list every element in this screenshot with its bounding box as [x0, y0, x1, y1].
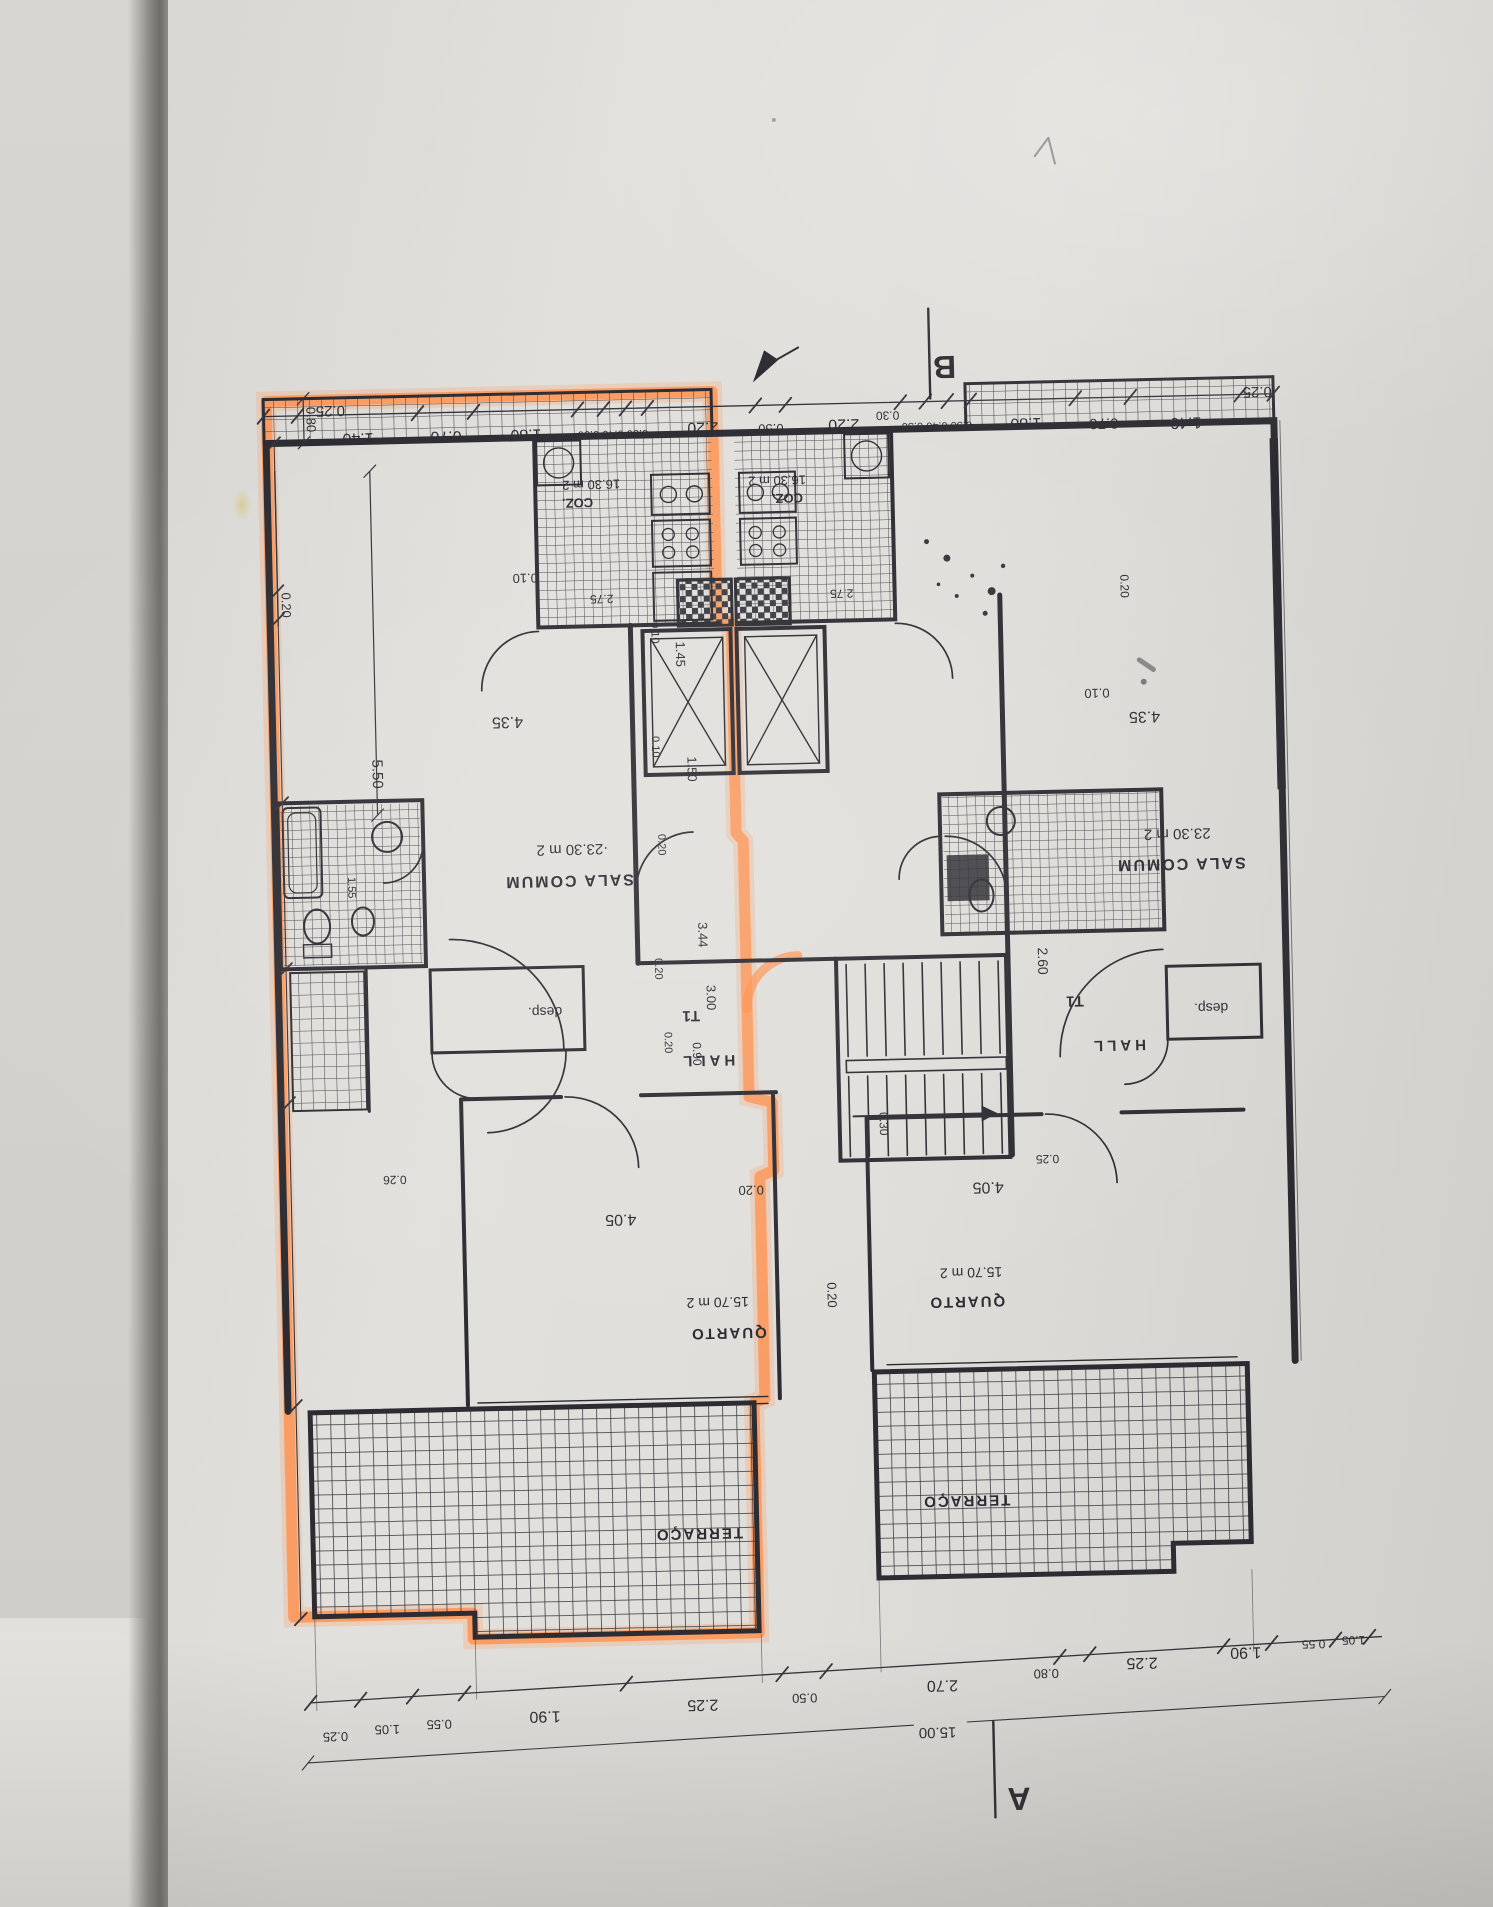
room-desp-right: desp.: [1194, 1000, 1229, 1017]
dim-v-145: 1.45: [673, 641, 689, 667]
label-t1-left: T1: [682, 1007, 700, 1024]
room-sala-area-left: ·23.30 m 2: [536, 840, 608, 859]
dim-v-020-wall-l: 0.20: [278, 592, 294, 618]
dim-bot-225-r: 2.25: [1126, 1654, 1158, 1672]
dim-h-010-r: 0.10: [1084, 685, 1110, 701]
room-quarto-area-left: 15.70 m 2: [686, 1294, 749, 1311]
dim-top-220-r: 2.20: [828, 415, 860, 433]
section-line-a: [993, 1721, 995, 1817]
dim-top-070-r: 0.70: [1089, 414, 1119, 432]
section-marker-b: B: [933, 349, 957, 386]
floor-plan-photo: 0.251.400.701.800.50 0.40 0.502.200.502.…: [0, 0, 1493, 1907]
dim-h-405-r: 4.05: [972, 1178, 1004, 1196]
dim-bot-270: 2.70: [927, 1676, 959, 1694]
dim-bot-225-l: 2.25: [687, 1696, 719, 1714]
terrace-left-hatch: [310, 1403, 759, 1641]
terrace-right-hatch: [874, 1364, 1252, 1578]
dim-v-020-quarto-l: 0.20: [824, 1282, 840, 1308]
shower-right: [948, 855, 989, 900]
room-terraco-right: TERRAÇO: [922, 1491, 1011, 1510]
vent-shaft-right: [735, 578, 790, 625]
label-t1-right: T1: [1066, 992, 1084, 1009]
dim-top-050-c: 0.50: [758, 421, 784, 437]
dim-top-180-r: 1.80: [1010, 414, 1042, 432]
room-coz-area-right: 16.30 m 2: [748, 472, 806, 488]
room-quarto-right: QUARTO: [928, 1292, 1005, 1311]
room-hall-left: HALL: [679, 1051, 735, 1069]
dim-top-025-r: 0.25: [1242, 383, 1272, 401]
dim-bot-055-l: 0.55: [426, 1717, 452, 1733]
dim-top-180-l: 1.80: [510, 425, 542, 443]
dim-top-220-l: 2.20: [687, 418, 719, 436]
dim-h-435-r: 4.35: [1129, 707, 1161, 725]
elevator-x-right: [745, 635, 820, 765]
dim-v-020-core2: 0.20: [652, 958, 664, 980]
room-coz-area-left: 16.30 m 2: [562, 477, 620, 493]
dim-bot-total: 15.00: [919, 1723, 957, 1741]
room-sala-left: SALA COMUM: [504, 870, 634, 890]
dim-bot-190-r: 1.90: [1230, 1643, 1262, 1661]
dim-bot-190-l: 1.90: [529, 1707, 561, 1725]
dim-h-405-l: 4.05: [605, 1210, 637, 1228]
dim-h-025-quarto-r: 0.25: [1035, 1152, 1059, 1167]
dim-h-010-l: 0.10: [512, 570, 538, 586]
dim-v-030-quarto-r: 0.30: [876, 1112, 891, 1136]
dim-bot-105-r: 1.05: [1341, 1633, 1365, 1648]
room-sala-area-right: 23.30 m 2: [1144, 824, 1211, 843]
dim-v-260: 2.60: [1035, 947, 1052, 975]
dim-v-010-shaft: 0.10: [648, 622, 660, 644]
service-strip-hatch: [290, 971, 367, 1111]
dim-top-140-r: 1.40: [1170, 413, 1202, 431]
dim-bot-105-l: 1.05: [374, 1722, 400, 1738]
dim-h-275-r: 2.75: [830, 586, 854, 601]
dim-h-275-l: 2.75: [590, 592, 614, 607]
room-hall-right: HALL: [1090, 1036, 1146, 1054]
floor-plan-drawing: 0.251.400.701.800.50 0.40 0.502.200.502.…: [0, 0, 1493, 1907]
room-quarto-left: QUARTO: [690, 1323, 767, 1342]
staircase: [844, 961, 1008, 1157]
room-sala-right: SALA COMUM: [1116, 853, 1246, 873]
dim-top-140-l: 1.40: [342, 429, 374, 447]
dim-v-550: 5.50: [368, 759, 386, 789]
dim-v-020-core3: 0.20: [662, 1032, 674, 1054]
dim-v-020-wall-r: 0.20: [1117, 574, 1132, 598]
dim-v-155-bath: 1.55: [345, 877, 357, 899]
stair-direction-arrow: [981, 1105, 997, 1121]
dim-bot-080: 0.80: [1033, 1666, 1059, 1682]
section-line-b: [928, 309, 930, 399]
dim-top-trio-l: 0.50 0.40 0.50: [578, 427, 649, 441]
dim-v-150: 1.50: [684, 756, 700, 782]
dim-top-030: 0.30: [875, 408, 899, 423]
dim-top-025-l: 0.25: [316, 402, 346, 420]
room-coz-left: COZ.: [562, 495, 593, 511]
room-quarto-area-right: 15.70 m 2: [940, 1264, 1003, 1281]
room-desp-left: desp.: [528, 1004, 563, 1021]
dim-h-026-quarto-l: 0.26: [383, 1173, 407, 1188]
dim-v-080: 0.80: [303, 407, 319, 433]
pen-check-mark: [1034, 138, 1055, 164]
dim-v-344: 3.44: [695, 922, 711, 948]
dim-top-trio-r: 0.50 0.40 0.50: [902, 419, 973, 433]
dim-bot-055-r: 0.55: [1301, 1637, 1325, 1652]
tile-hatches: [263, 377, 1301, 1642]
dim-v-300: 3.00: [704, 985, 720, 1011]
dim-top-070-l: 0.70: [430, 427, 462, 445]
room-coz-right: COZ.: [772, 490, 803, 506]
dim-bot-025-l: 0.25: [323, 1729, 349, 1745]
dim-h-435-l: 4.35: [492, 713, 524, 731]
dim-v-010-lobby: 0.10: [649, 736, 661, 758]
section-marker-a: A: [1007, 1781, 1031, 1818]
dim-bot-050: 0.50: [792, 1690, 818, 1706]
dim-h-020-quarto: 0.20: [738, 1182, 764, 1198]
north-arrow: [752, 350, 779, 383]
dim-v-020-core1: 0.20: [655, 834, 667, 856]
room-terraco-left: TERRAÇO: [655, 1524, 744, 1543]
